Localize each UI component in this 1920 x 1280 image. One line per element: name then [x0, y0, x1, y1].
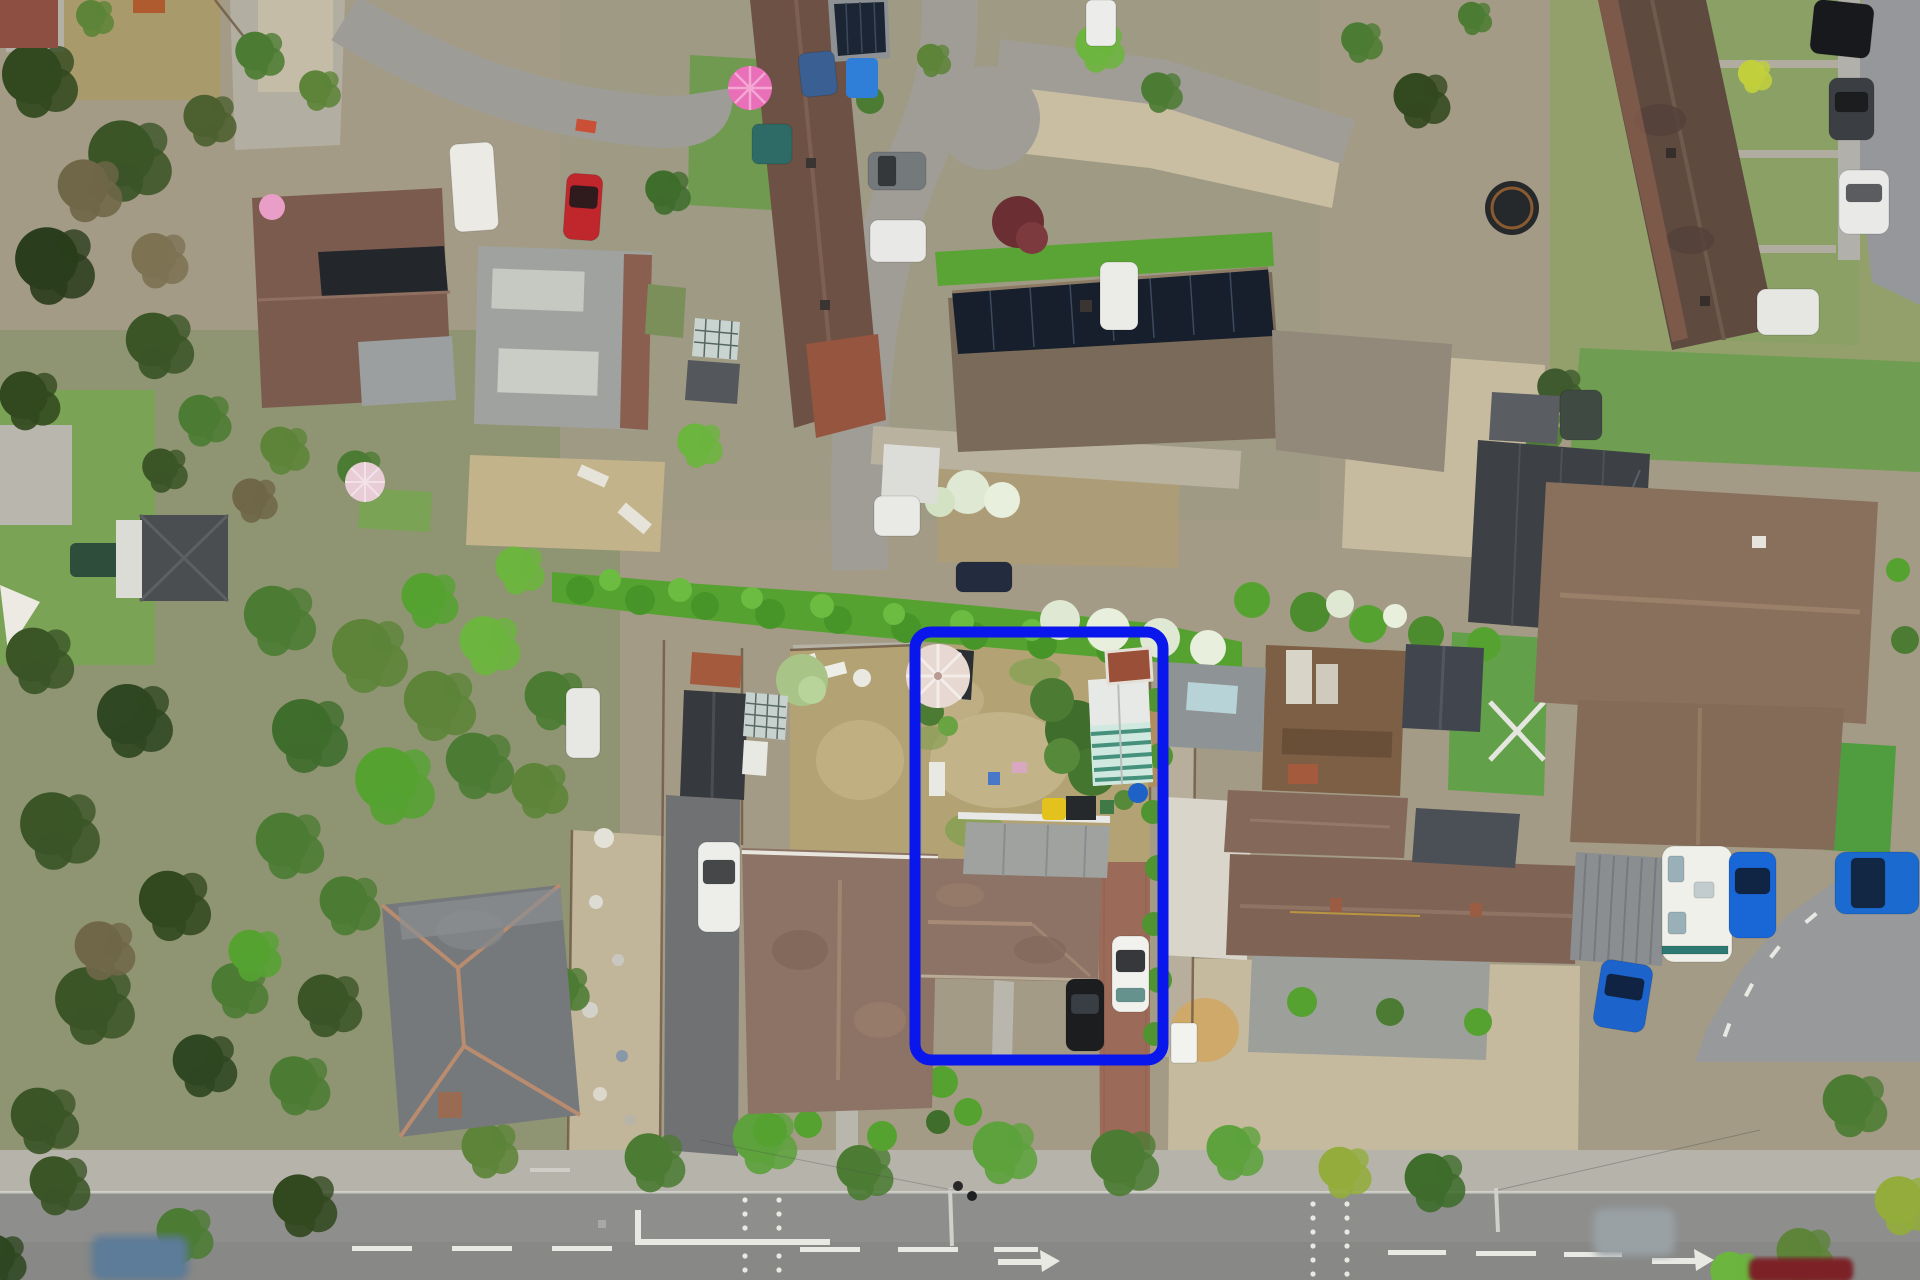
- rear-window: [1116, 988, 1145, 1002]
- moving-car-main-road: [1593, 1208, 1675, 1256]
- ridge-line: [838, 880, 840, 1080]
- cabin: [1851, 858, 1885, 908]
- rotary-dryer: [594, 828, 614, 848]
- bare-patch: [816, 720, 904, 800]
- soil-row: [1282, 728, 1393, 758]
- pallet: [1316, 664, 1338, 704]
- windshield: [1116, 950, 1145, 972]
- screenshot-root: [0, 0, 1920, 1280]
- pale-round-tree-highlight: [798, 676, 826, 704]
- flat-roof-section: [358, 336, 456, 406]
- white-car-culdesac: [1100, 262, 1138, 330]
- white-car-mid-drive: [874, 496, 920, 536]
- solar-roof-small: [828, 0, 890, 62]
- planter-red: [1288, 764, 1318, 784]
- windshield: [569, 185, 598, 209]
- caravan-window: [1668, 912, 1686, 934]
- white-awning: [742, 740, 768, 776]
- blue-blurred-car-left: [92, 1236, 188, 1280]
- chimney: [1080, 300, 1092, 312]
- white-car-target-drive: [1112, 936, 1149, 1012]
- pallet: [1286, 650, 1312, 704]
- dark-car-under-tree: [1560, 390, 1602, 440]
- blue-car-1: [1729, 852, 1776, 938]
- black-car-target-drive: [1066, 979, 1104, 1051]
- maroon-bush: [1016, 222, 1048, 254]
- white-bench-target: [929, 762, 945, 796]
- target-greenhouse: [1088, 676, 1153, 786]
- gray-shed-mid: [685, 360, 740, 404]
- chimney: [1330, 898, 1342, 912]
- house-top-left-b: [474, 246, 652, 430]
- white-shed-left: [116, 520, 142, 598]
- hot-tub: [1485, 181, 1539, 235]
- yellow-sack: [1042, 798, 1066, 820]
- neighbour-dark-pitched-roof: [1412, 808, 1520, 868]
- pedestrian: [953, 1181, 963, 1191]
- red-car-top-left: [563, 173, 604, 241]
- pink-parasol-top-left: [259, 194, 285, 220]
- chimney: [438, 1092, 462, 1118]
- windshield: [1735, 868, 1770, 894]
- white-car-right-road-2: [1757, 289, 1819, 335]
- blue-van-top: [798, 50, 838, 98]
- junk: [589, 895, 603, 909]
- shed-skylight: [1186, 682, 1238, 714]
- black-suv-right-road: [1809, 0, 1874, 59]
- small-garage-right: [1489, 392, 1560, 444]
- picnic-table: [133, 0, 165, 13]
- black-crate: [1066, 796, 1096, 820]
- lamp-post: [1496, 1188, 1498, 1232]
- ridge-line: [1698, 708, 1700, 845]
- dark-shed-neighbour: [680, 690, 748, 800]
- white-van-top-left: [449, 142, 499, 233]
- patio-neighbour-front: [1248, 955, 1490, 1060]
- red-shed: [690, 652, 742, 688]
- manhole: [598, 1220, 606, 1228]
- white-car-terrace: [870, 220, 926, 262]
- house-top-left-a: [252, 188, 456, 408]
- white-van-top: [1086, 0, 1116, 46]
- teal-car-terrace: [752, 124, 792, 164]
- brick-edge: [620, 254, 652, 430]
- roof-white-patch: [497, 348, 598, 395]
- patio-left-garden: [0, 425, 72, 525]
- aerial-photo: [0, 0, 1920, 1280]
- roof-extension-right: [1272, 330, 1452, 472]
- blue-tarp: [846, 58, 878, 98]
- dropped-curb: [530, 1168, 570, 1172]
- pale-parasol-left-garden: [345, 462, 385, 502]
- roof-white-patch: [491, 268, 584, 311]
- blue-car-3: [1592, 958, 1654, 1033]
- gray-suv-terrace: [868, 152, 926, 190]
- red-roof-corner: [0, 0, 58, 48]
- neighbour-hip-roof-small: [1224, 790, 1408, 858]
- roof-window-dark: [318, 246, 448, 298]
- neighbour-studio-dark: [1402, 644, 1484, 732]
- caravan-stripe: [1662, 946, 1728, 954]
- windshield: [1835, 92, 1868, 112]
- white-car-right-road: [1839, 170, 1889, 234]
- dry-garden-mid: [466, 455, 665, 552]
- dark-blue-car-hedge-gap: [956, 562, 1012, 592]
- chimney: [820, 300, 830, 310]
- junk: [593, 1087, 607, 1101]
- pink-toy-target: [1012, 762, 1027, 773]
- target-front-path: [992, 980, 1014, 1060]
- target-shed-red-roof: [1106, 648, 1152, 684]
- red-tile-section: [806, 334, 886, 438]
- windshield: [878, 156, 896, 186]
- ridge-line: [928, 922, 1032, 924]
- lamp-post: [950, 1188, 952, 1246]
- bistro-table: [853, 669, 871, 687]
- chimney: [806, 158, 816, 168]
- neighbour-long-roof: [1226, 854, 1580, 964]
- left-bungalow: [742, 848, 938, 1114]
- junk: [612, 954, 624, 966]
- pink-parasol-terrace: [728, 66, 772, 110]
- culdesac-turning: [936, 66, 1040, 170]
- windshield: [703, 860, 735, 884]
- white-car-by-fence: [566, 688, 600, 758]
- neighbour-shed-gray: [1160, 662, 1266, 752]
- junk: [616, 1050, 628, 1062]
- gray-car-right-road: [1829, 78, 1874, 140]
- big-house-right: [1534, 482, 1878, 850]
- pedestrian: [967, 1191, 977, 1201]
- green-shed: [645, 284, 686, 338]
- junk: [624, 1114, 636, 1126]
- chimney: [1470, 903, 1482, 917]
- blue-barrel: [1128, 783, 1148, 803]
- blue-chair-target: [988, 772, 1000, 785]
- white-trailer-outside-boundary: [1171, 1023, 1197, 1063]
- bottom-left-house: [382, 885, 580, 1137]
- corrugated-carport: [1570, 852, 1668, 966]
- blue-car-2: [1835, 852, 1919, 914]
- small-greenhouse-left: [743, 692, 788, 740]
- chimney: [1700, 296, 1710, 306]
- white-structure-mid: [881, 444, 940, 504]
- caravan-window: [1668, 856, 1684, 882]
- dark-red-car-main-road: [1749, 1258, 1853, 1280]
- caravan-window: [1694, 882, 1714, 898]
- green-crate: [1100, 800, 1114, 814]
- white-caravan: [1662, 846, 1732, 962]
- chimney: [1666, 148, 1676, 158]
- white-car-neighbour-drive: [698, 842, 740, 932]
- gazebo-left-garden: [116, 515, 228, 601]
- greenhouse-mid: [692, 318, 740, 360]
- roof-vent: [1752, 536, 1766, 548]
- trampoline: [70, 543, 122, 577]
- garden-path: [1718, 60, 1848, 68]
- windshield: [1071, 994, 1099, 1014]
- windshield: [1846, 184, 1882, 202]
